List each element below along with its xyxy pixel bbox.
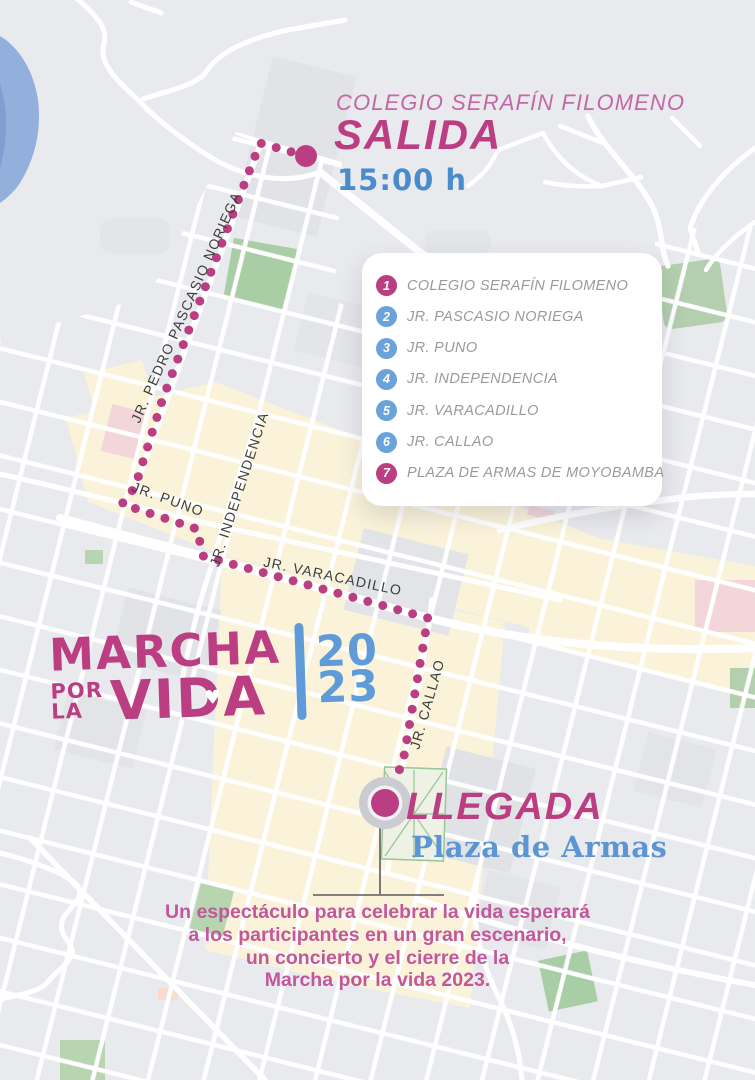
logo-divider-bar — [294, 623, 306, 720]
route-step-label: JR. PUNO — [407, 340, 477, 356]
route-list-item: 7 PLAZA DE ARMAS DE MOYOBAMBA — [376, 462, 648, 485]
logo-word-la: LA — [51, 701, 104, 723]
heart-icon: ♥ — [204, 689, 224, 706]
route-list-card: 1 COLEGIO SERAFÍN FILOMENO 2 JR. PASCASI… — [362, 253, 662, 506]
closing-note-line: un concierto y el cierre de la — [95, 947, 660, 970]
route-step-badge: 1 — [376, 275, 397, 296]
logo-year-bottom: 23 — [317, 669, 380, 707]
route-list-item: 4 JR. INDEPENDENCIA — [376, 368, 648, 391]
route-list-item: 6 JR. CALLAO — [376, 431, 648, 454]
route-list-item: 2 JR. PASCASIO NORIEGA — [376, 305, 648, 328]
logo-text: MARCHA POR LA VIDA ♥ — [48, 625, 283, 728]
marcha-por-la-vida-logo: MARCHA POR LA VIDA ♥ 20 23 — [48, 620, 380, 728]
closing-note-line: Un espectáculo para celebrar la vida esp… — [95, 901, 660, 924]
route-step-badge: 7 — [376, 463, 397, 484]
route-step-label: PLAZA DE ARMAS DE MOYOBAMBA — [407, 465, 664, 481]
march-route-poster: JR. PEDRO PASCASIO NORIEGA JR. PUNO JR. … — [0, 0, 755, 1080]
closing-note-line: a los participantes en un gran escenario… — [95, 924, 660, 947]
finish-location-label: Plaza de Armas — [411, 830, 667, 864]
route-step-badge: 6 — [376, 432, 397, 453]
end-marker — [359, 777, 411, 829]
route-step-badge: 5 — [376, 400, 397, 421]
route-step-badge: 3 — [376, 338, 397, 359]
route-step-label: COLEGIO SERAFÍN FILOMENO — [407, 278, 628, 294]
route-list-item: 5 JR. VARACADILLO — [376, 399, 648, 422]
route-list-item: 3 JR. PUNO — [376, 337, 648, 360]
route-step-label: JR. CALLAO — [407, 434, 494, 450]
llegada-title: LLEGADA — [406, 786, 604, 829]
route-step-label: JR. VARACADILLO — [407, 403, 539, 419]
route-step-label: JR. INDEPENDENCIA — [407, 371, 558, 387]
start-time: 15:00 h — [337, 163, 467, 197]
route-step-label: JR. PASCASIO NORIEGA — [407, 309, 584, 325]
closing-note: Un espectáculo para celebrar la vida esp… — [95, 901, 660, 992]
start-marker — [295, 145, 317, 167]
salida-title: SALIDA — [334, 114, 502, 156]
route-step-badge: 4 — [376, 369, 397, 390]
route-step-badge: 2 — [376, 306, 397, 327]
route-list-item: 1 COLEGIO SERAFÍN FILOMENO — [376, 274, 648, 297]
logo-word-vida: VIDA ♥ — [109, 672, 267, 725]
closing-note-line: Marcha por la vida 2023. — [95, 969, 660, 992]
